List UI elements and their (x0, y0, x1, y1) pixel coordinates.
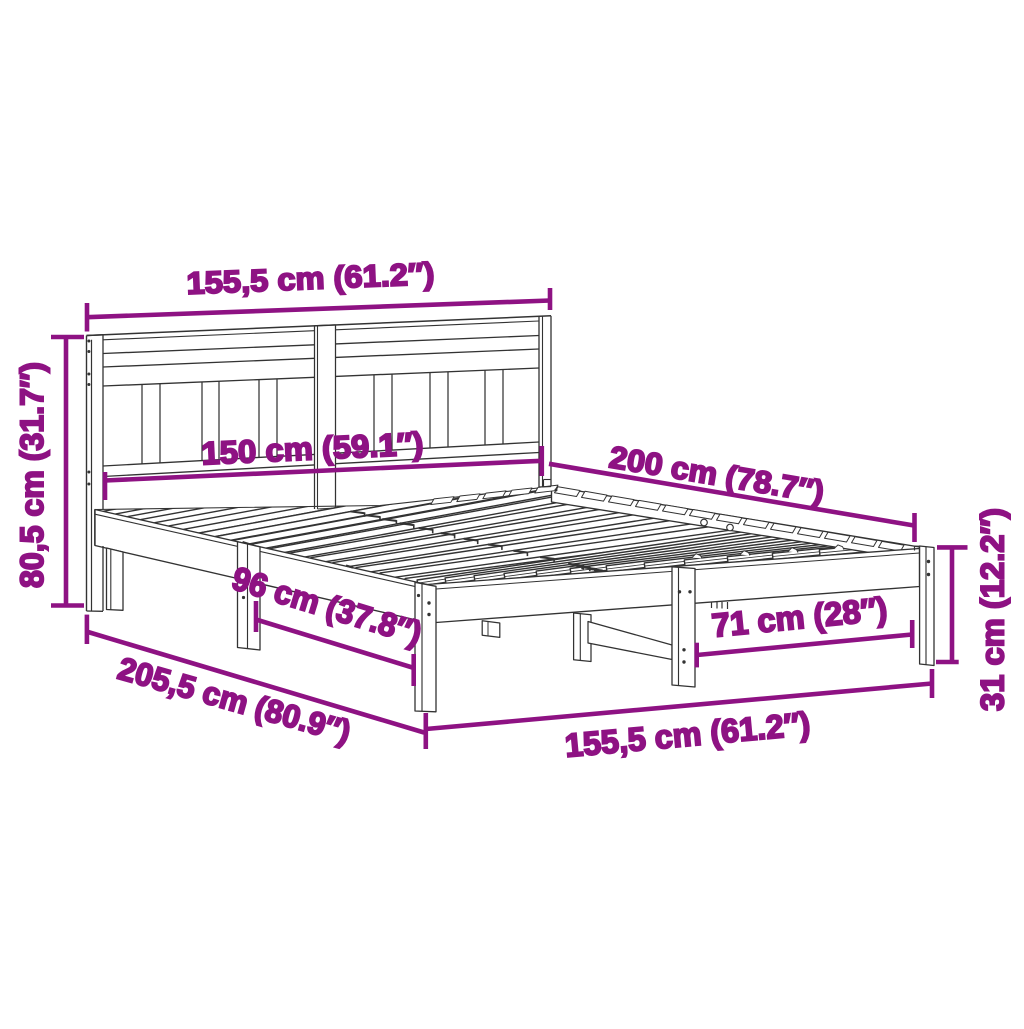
svg-text:31 cm (12.2″): 31 cm (12.2″) (975, 508, 1011, 711)
svg-text:80,5 cm (31.7″): 80,5 cm (31.7″) (14, 362, 50, 588)
